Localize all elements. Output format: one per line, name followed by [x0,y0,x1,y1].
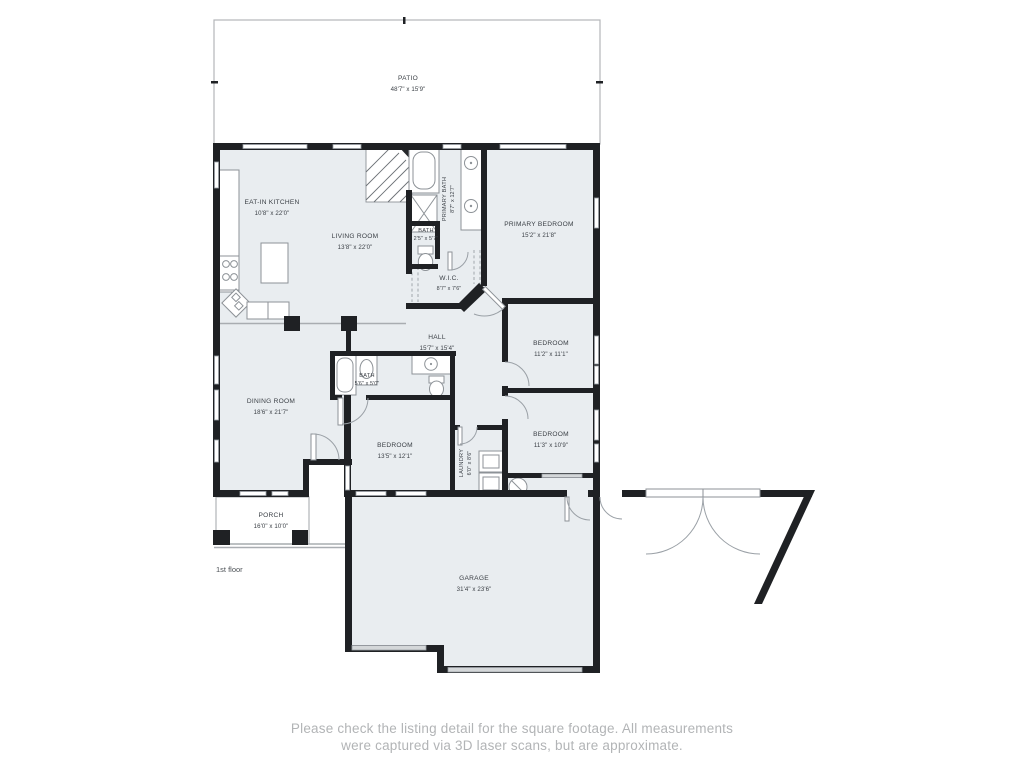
garage-door [352,646,426,651]
room-label-hall: HALL [428,334,446,341]
room-label-bedroom-mid: BEDROOM [377,442,413,449]
stairs [366,146,412,202]
room-label-bath: BATH [418,228,434,234]
room-dims-primary-bedroom: 15'2" x 21'8" [522,232,557,239]
double-door [646,489,760,554]
room-dims-porch: 16'0" x 10'0" [254,523,289,530]
room-label-patio: PATIO [398,75,418,82]
garage-door [448,668,582,673]
room-dims-dining-room: 18'6" x 21'7" [254,409,289,416]
room-dims-bedroom-ne: 11'2" x 11'1" [534,351,568,358]
floor-plan-page: PATIO 48'7" x 15'9" EAT-IN KITCHEN 10'8"… [0,0,1024,768]
room-dims-eat-in-kitchen: 10'8" x 22'0" [255,210,290,217]
room-dims-bedroom-se: 11'3" x 10'9" [534,442,568,449]
disclaimer-line-2: were captured via 3D laser scans, but ar… [0,737,1024,754]
bathtub-icon [409,148,439,193]
room-label-primary-bedroom: PRIMARY BEDROOM [504,221,573,228]
room-dims-living-room: 13'8" x 22'0" [338,244,373,251]
toilet-icon [429,376,444,397]
room-label-eat-in-kitchen: EAT-IN KITCHEN [244,199,299,206]
room-dims-patio: 48'7" x 15'9" [391,86,426,93]
entry-alcove [309,463,347,494]
room-dims-garage: 31'4" x 23'6" [457,586,492,593]
floor-label: 1st floor [216,565,243,574]
room-label-wic: W.I.C. [439,275,458,282]
bathtub-icon [334,355,356,395]
room-dims-bedroom-mid: 13'5" x 12'1" [378,453,413,460]
sink-icon [412,355,453,374]
floor-plan-svg: PATIO 48'7" x 15'9" EAT-IN KITCHEN 10'8"… [0,0,1024,768]
room-dims-hall: 15'7" x 15'4" [420,345,455,352]
room-dims-primary-bath: 8'7" x 12'7" [450,185,456,213]
disclaimer-line-1: Please check the listing detail for the … [0,720,1024,737]
room-label-bedroom-se: BEDROOM [533,431,569,438]
disclaimer: Please check the listing detail for the … [0,720,1024,754]
room-label-porch: PORCH [258,512,283,519]
room-dims-bath: 2'5" x 5'7" [414,236,439,242]
room-label-garage: GARAGE [459,575,489,582]
room-label-dining-room: DINING ROOM [247,398,295,405]
room-label-laundry: LAUNDRY [459,449,465,477]
shower-icon [411,195,437,232]
room-label-bedroom-ne: BEDROOM [533,340,569,347]
kitchen-island [261,243,288,283]
room-label-bath-2: BATH [359,373,375,379]
room-dims-laundry: 6'0" x 8'6" [467,451,473,476]
washer-icon [479,451,503,472]
closet-slider [542,474,582,478]
room-dims-bath-2: 5'6" x 5'0" [355,381,380,387]
double-sink-vanity [461,149,482,230]
room-label-primary-bath: PRIMARY BATH [442,177,448,221]
sofa-icon [247,302,289,319]
stove-icon [219,256,239,290]
room-label-living-room: LIVING ROOM [332,233,379,240]
room-dims-wic: 8'7" x 7'6" [437,286,462,292]
